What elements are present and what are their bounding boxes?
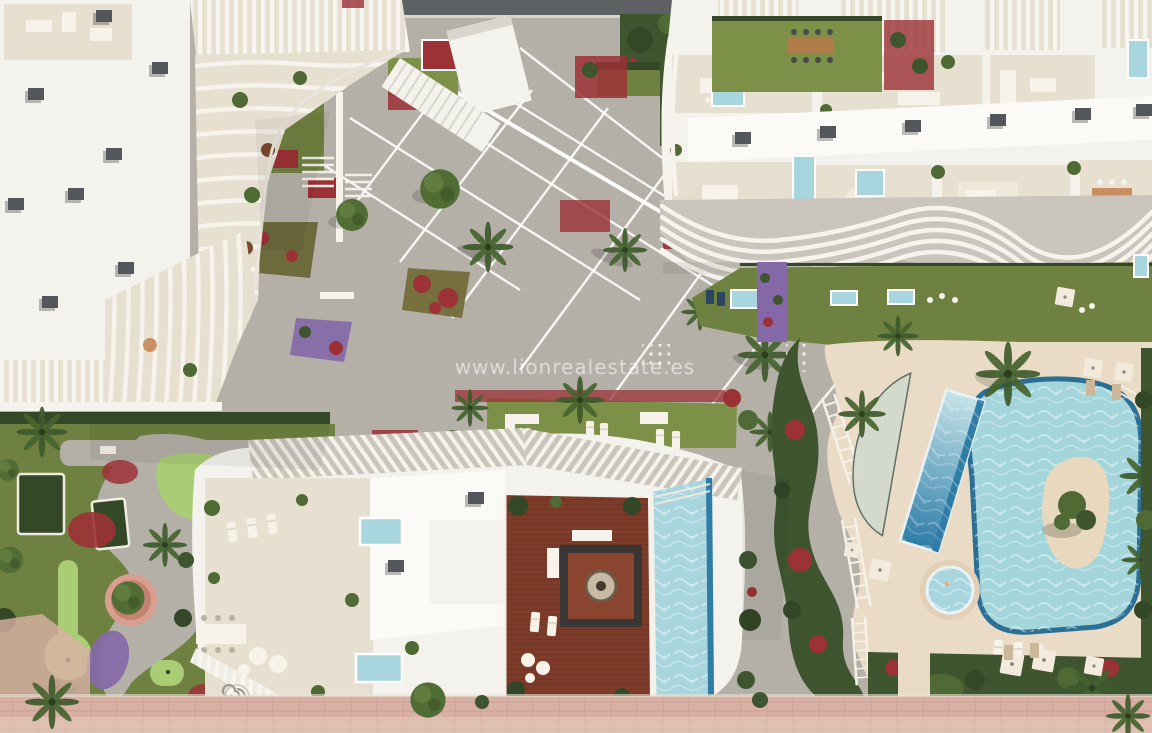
plunge-pool xyxy=(356,654,402,682)
building-c xyxy=(174,428,761,720)
building-b-forecourt xyxy=(712,16,934,92)
lagoon-pool xyxy=(969,379,1142,632)
hedge-flowers xyxy=(809,635,827,653)
flower-clump xyxy=(723,389,741,407)
rooftop-wood-deck xyxy=(505,495,650,704)
building-b xyxy=(660,0,1152,352)
jacuzzi xyxy=(920,560,980,620)
hedge-flowers xyxy=(788,548,812,572)
hedge-texture xyxy=(783,601,801,619)
dining-table xyxy=(196,624,246,644)
site-plan-render: www.lionrealestate.es xyxy=(0,0,1152,733)
pool-island xyxy=(1042,457,1109,569)
hedge-flowers xyxy=(785,420,805,440)
watermark: www.lionrealestate.es xyxy=(455,355,696,379)
tree-clump xyxy=(738,410,758,430)
round-planter xyxy=(105,574,157,626)
promenade-palm xyxy=(25,675,79,729)
promenade-tree xyxy=(410,682,445,717)
building-a-top-pergola xyxy=(190,0,410,55)
render-canvas: www.lionrealestate.es xyxy=(0,0,1152,733)
plunge-pool xyxy=(360,518,402,545)
promenade-shrub xyxy=(752,692,768,708)
driveway-median xyxy=(757,262,787,342)
promenade-shrub xyxy=(475,695,489,709)
rooftop-infinity-pool xyxy=(652,478,714,702)
